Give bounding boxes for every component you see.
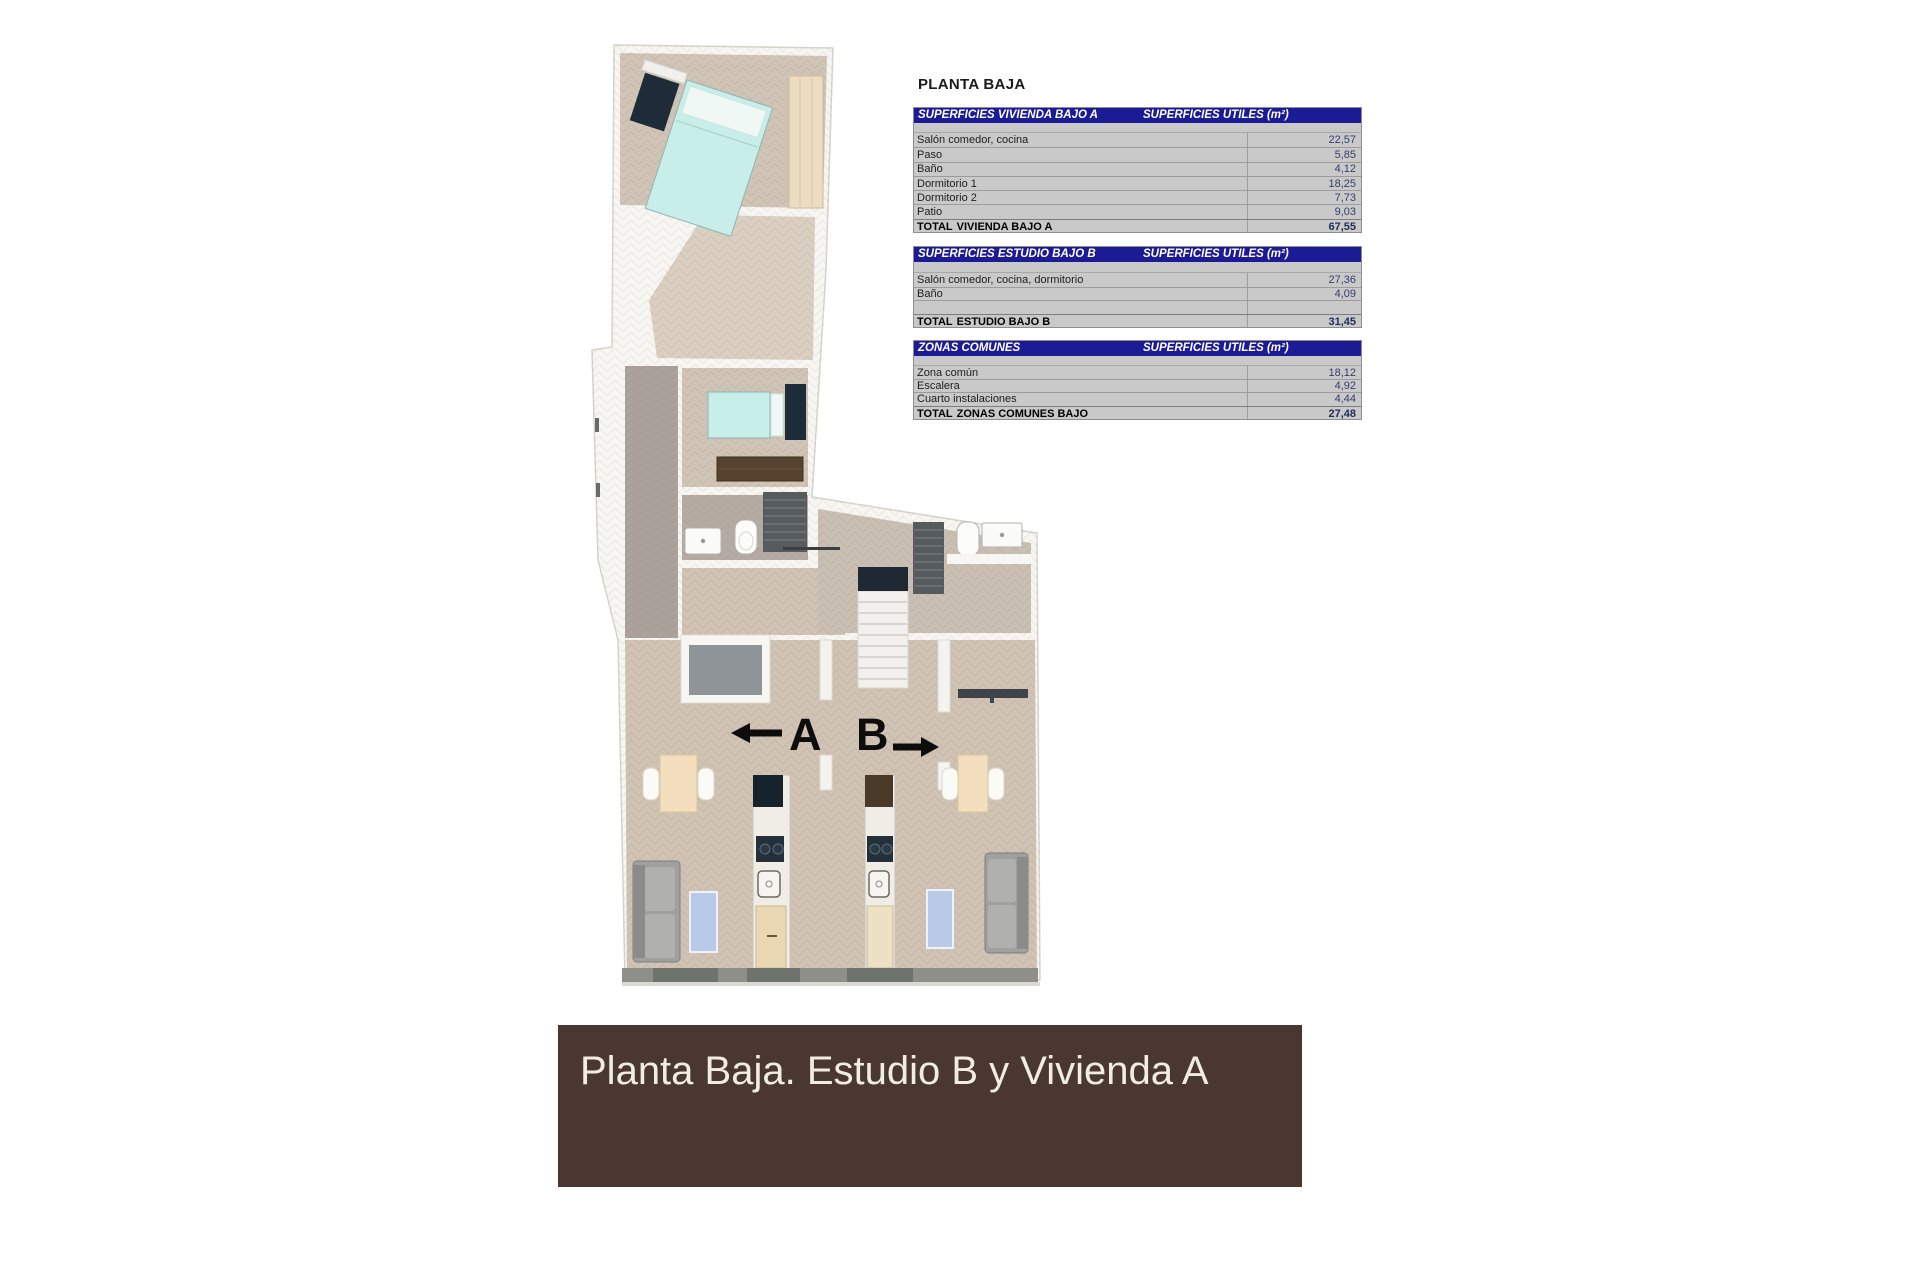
area-value: 4,09 [1247, 288, 1361, 301]
table-title: SUPERFICIES VIVIENDA BAJO A [918, 108, 1098, 123]
table-row: Paso5,85 [914, 147, 1361, 161]
table-body: Salón comedor, cocina22,57Paso5,85Baño4,… [914, 133, 1361, 219]
area-value: 9,03 [1247, 205, 1361, 218]
table-row: Patio9,03 [914, 204, 1361, 218]
area-label: Dormitorio 2 [914, 192, 1247, 204]
table-title: ZONAS COMUNES [918, 341, 1020, 356]
table-spacer [914, 123, 1361, 133]
kitchen-island-a [753, 775, 790, 970]
area-label: Cuarto instalaciones [914, 393, 1247, 405]
table-row: Cuarto instalaciones4,44 [914, 392, 1361, 405]
surface-table-zonas-comunes: ZONAS COMUNES SUPERFICIES UTILES (m²) Zo… [913, 340, 1362, 420]
table-row: Baño4,12 [914, 162, 1361, 176]
rug-b-icon [927, 890, 953, 948]
total-value: 31,45 [1247, 315, 1361, 329]
page-title: PLANTA BAJA [918, 76, 1025, 93]
table-header: SUPERFICIES ESTUDIO BAJO B SUPERFICIES U… [914, 247, 1361, 262]
area-label: Salón comedor, cocina, dormitorio [914, 274, 1247, 286]
total-label: TOTALZONAS COMUNES BAJO [914, 408, 1247, 420]
table-row: Baño4,09 [914, 287, 1361, 301]
table-row [914, 300, 1361, 314]
brochure-page: A B PLANTA BAJA SUPERFICIES VIVIENDA BAJ… [0, 0, 1920, 1280]
rug-a-icon [690, 892, 717, 952]
table-units-header: SUPERFICIES UTILES (m²) [1143, 108, 1289, 123]
area-label: Patio [914, 206, 1247, 218]
area-value: 5,85 [1247, 148, 1361, 161]
area-label: Baño [914, 288, 1247, 300]
table-body: Salón comedor, cocina, dormitorio27,36Ba… [914, 273, 1361, 314]
sofa-a-icon [633, 861, 680, 962]
table-total-row: TOTALZONAS COMUNES BAJO 27,48 [914, 406, 1361, 420]
area-label: Salón comedor, cocina [914, 134, 1247, 146]
table-row: Dormitorio 118,25 [914, 176, 1361, 190]
unit-a-label: A [789, 709, 822, 760]
table-row: Salón comedor, cocina, dormitorio27,36 [914, 273, 1361, 287]
table-spacer [914, 356, 1361, 366]
table-header: ZONAS COMUNES SUPERFICIES UTILES (m²) [914, 341, 1361, 356]
lightwell [681, 635, 770, 703]
area-label: Zona común [914, 367, 1247, 379]
total-value: 27,48 [1247, 407, 1361, 420]
area-value: 18,12 [1247, 366, 1361, 379]
total-label: TOTALVIVIENDA BAJO A [914, 221, 1247, 233]
area-label: Escalera [914, 380, 1247, 392]
caption-text: Planta Baja. Estudio B y Vivienda A [558, 1025, 1302, 1094]
area-label: Baño [914, 163, 1247, 175]
table-spacer [914, 262, 1361, 273]
kitchen-island-b [865, 775, 895, 970]
counter-shelf-icon [958, 689, 1028, 698]
surface-table-vivienda-bajo-a: SUPERFICIES VIVIENDA BAJO A SUPERFICIES … [913, 107, 1362, 233]
table-total-row: TOTALESTUDIO BAJO B 31,45 [914, 314, 1361, 329]
unit-b-label: B [856, 709, 889, 760]
table-total-row: TOTALVIVIENDA BAJO A 67,55 [914, 219, 1361, 233]
table-units-header: SUPERFICIES UTILES (m²) [1143, 247, 1289, 262]
area-value: 7,73 [1247, 191, 1361, 204]
bed-2-icon [708, 384, 806, 440]
total-value: 67,55 [1247, 220, 1361, 233]
table-row: Dormitorio 27,73 [914, 190, 1361, 204]
area-value: 27,36 [1247, 273, 1361, 287]
facade-wall [622, 968, 1040, 986]
table-row: Salón comedor, cocina22,57 [914, 133, 1361, 147]
total-label: TOTALESTUDIO BAJO B [914, 316, 1247, 328]
staircase-icon [858, 567, 908, 688]
area-label: Paso [914, 149, 1247, 161]
area-value: 18,25 [1247, 177, 1361, 190]
area-value: 4,44 [1247, 393, 1361, 405]
table-header: SUPERFICIES VIVIENDA BAJO A SUPERFICIES … [914, 108, 1361, 123]
area-value [1247, 301, 1361, 314]
sofa-b-icon [985, 853, 1028, 953]
area-value: 22,57 [1247, 133, 1361, 147]
area-value: 4,12 [1247, 163, 1361, 176]
table-body: Zona común18,12Escalera4,92Cuarto instal… [914, 366, 1361, 406]
area-value: 4,92 [1247, 380, 1361, 392]
caption-banner: Planta Baja. Estudio B y Vivienda A [558, 1025, 1302, 1187]
table-title: SUPERFICIES ESTUDIO BAJO B [918, 247, 1096, 262]
table-units-header: SUPERFICIES UTILES (m²) [1143, 341, 1289, 356]
area-label: Dormitorio 1 [914, 178, 1247, 190]
surface-table-estudio-bajo-b: SUPERFICIES ESTUDIO BAJO B SUPERFICIES U… [913, 246, 1362, 328]
wardrobe-icon [789, 76, 823, 208]
table-row: Escalera4,92 [914, 379, 1361, 392]
table-row: Zona común18,12 [914, 366, 1361, 379]
